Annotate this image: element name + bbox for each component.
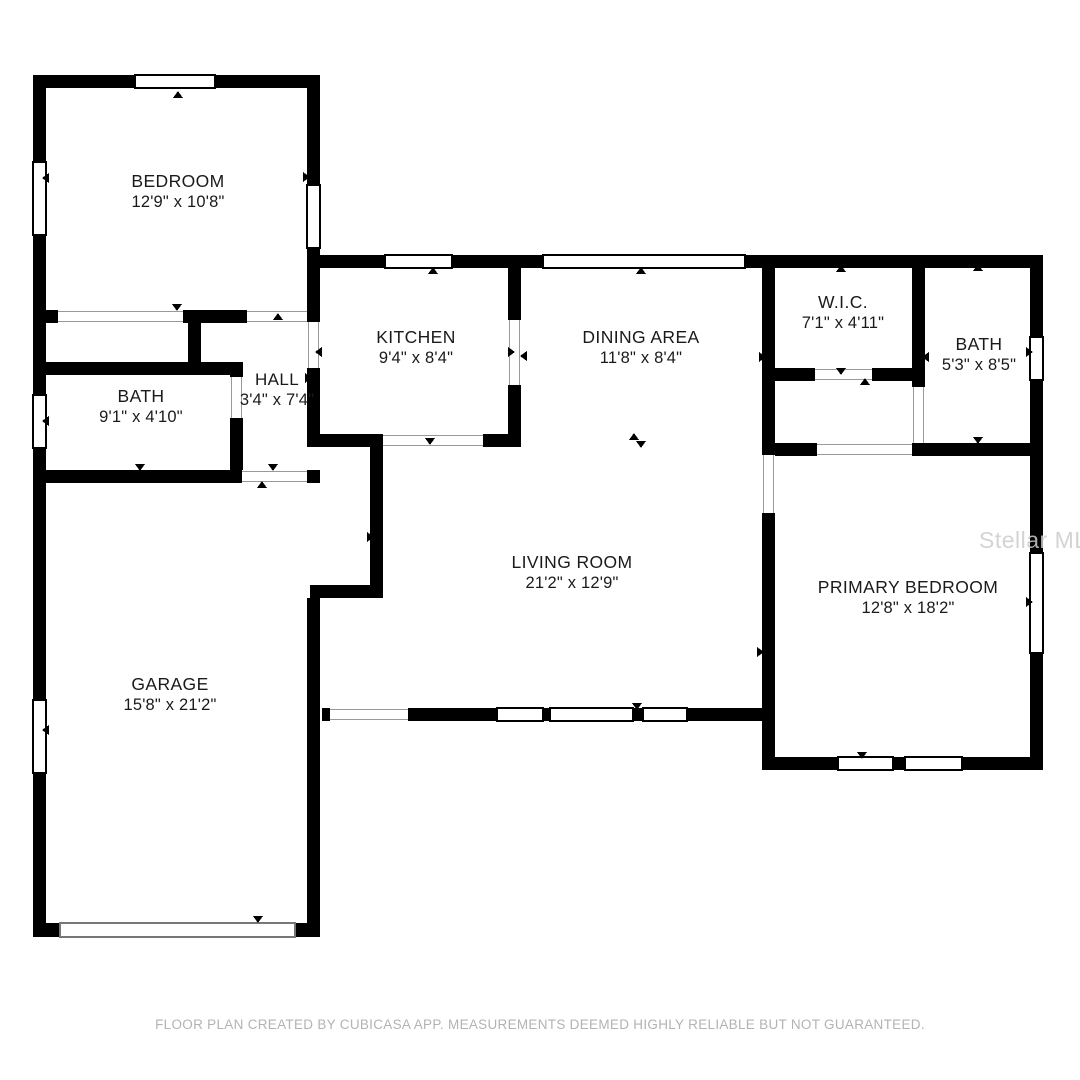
- room-dims: 5'3" x 8'5": [942, 355, 1016, 376]
- room-name: BATH: [99, 386, 183, 407]
- room-label-living-room: LIVING ROOM 21'2" x 12'9": [511, 552, 632, 594]
- room-dims: 9'1" x 4'10": [99, 407, 183, 428]
- door-arrows-layer: [42, 91, 1033, 923]
- room-label-kitchen: KITCHEN 9'4" x 8'4": [376, 327, 456, 369]
- floor-plan-drawing: [0, 0, 1080, 1080]
- garage-door: [60, 923, 295, 937]
- room-name: BEDROOM: [131, 171, 224, 192]
- room-dims: 12'8" x 18'2": [818, 598, 998, 619]
- arrow-down-icon: [172, 304, 182, 311]
- room-name: LIVING ROOM: [511, 552, 632, 573]
- room-label-bath-right: BATH 5'3" x 8'5": [942, 334, 1016, 376]
- arrow-down-icon: [135, 464, 145, 471]
- room-name: PRIMARY BEDROOM: [818, 577, 998, 598]
- arrow-up-icon: [173, 91, 183, 98]
- room-dims: 21'2" x 12'9": [511, 573, 632, 594]
- arrow-down-icon: [636, 441, 646, 448]
- arrow-left-icon: [520, 351, 527, 361]
- room-label-dining-area: DINING AREA 11'8" x 8'4": [582, 327, 699, 369]
- room-label-hall: HALL 3'4" x 7'4": [240, 369, 314, 411]
- room-name: KITCHEN: [376, 327, 456, 348]
- room-name: GARAGE: [123, 674, 216, 695]
- room-label-bedroom: BEDROOM 12'9" x 10'8": [131, 171, 224, 213]
- room-dims: 11'8" x 8'4": [582, 348, 699, 369]
- room-dims: 7'1" x 4'11": [802, 313, 885, 334]
- room-dims: 3'4" x 7'4": [240, 390, 314, 411]
- arrow-down-icon: [268, 464, 278, 471]
- stellar-mls-watermark: Stellar MLS: [979, 527, 1080, 554]
- room-name: DINING AREA: [582, 327, 699, 348]
- room-label-bath-left: BATH 9'1" x 4'10": [99, 386, 183, 428]
- floor-plan: BEDROOM 12'9" x 10'8" KITCHEN 9'4" x 8'4…: [0, 0, 1080, 1080]
- footer-disclaimer: FLOOR PLAN CREATED BY CUBICASA APP. MEAS…: [0, 1017, 1080, 1032]
- room-label-primary-bedroom: PRIMARY BEDROOM 12'8" x 18'2": [818, 577, 998, 619]
- room-name: W.I.C.: [802, 292, 885, 313]
- room-label-garage: GARAGE 15'8" x 21'2": [123, 674, 216, 716]
- room-name: BATH: [942, 334, 1016, 355]
- arrow-down-icon: [973, 437, 983, 444]
- room-dims: 12'9" x 10'8": [131, 192, 224, 213]
- room-dims: 9'4" x 8'4": [376, 348, 456, 369]
- room-name: HALL: [240, 369, 314, 390]
- arrow-down-icon: [253, 916, 263, 923]
- arrow-up-icon: [629, 433, 639, 440]
- room-label-wic: W.I.C. 7'1" x 4'11": [802, 292, 885, 334]
- room-dims: 15'8" x 21'2": [123, 695, 216, 716]
